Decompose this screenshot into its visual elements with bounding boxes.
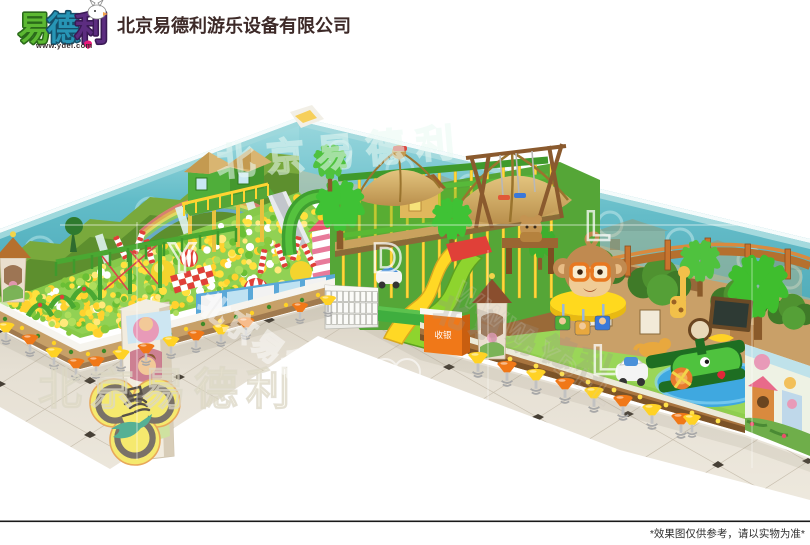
svg-text:北京易德利: 北京易德利	[38, 365, 298, 414]
svg-text:D: D	[372, 234, 402, 281]
svg-text:L: L	[592, 336, 618, 383]
svg-text:www.ydel.com: www.ydel.com	[35, 41, 93, 50]
svg-text:北京易德利游乐设备有限公司: 北京易德利游乐设备有限公司	[117, 15, 351, 36]
svg-text:Y: Y	[168, 234, 196, 281]
svg-text:*效果图仅供参考，请以实物为准*: *效果图仅供参考，请以实物为准*	[650, 527, 805, 540]
